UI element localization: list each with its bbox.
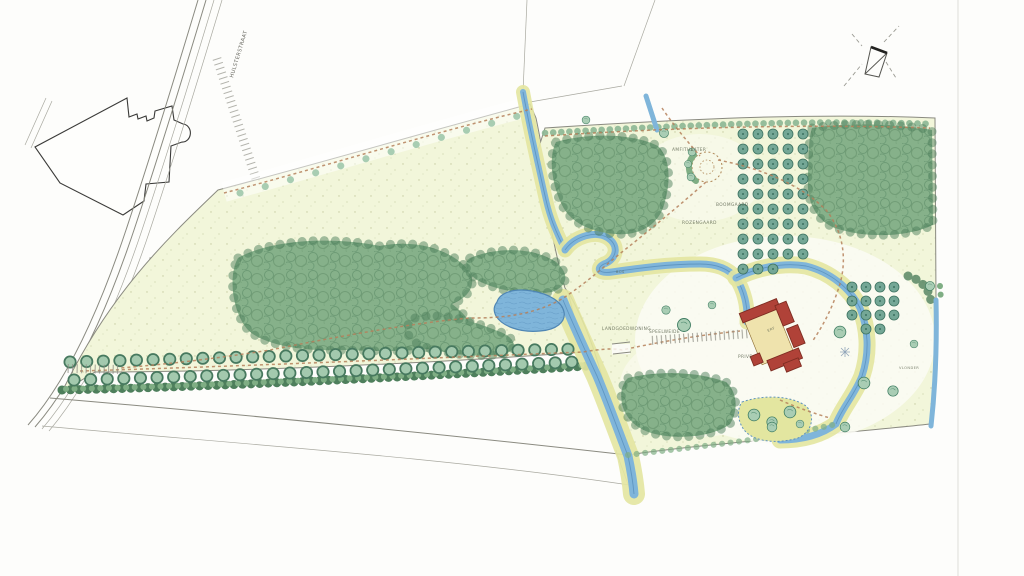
amphitheater-label: AMFITHEATER — [672, 147, 706, 153]
orchard-label: BOOMGAARD — [716, 202, 749, 208]
rose-garden-label: ROZENGAARD — [682, 220, 717, 226]
deck-label: VLONDER — [899, 366, 919, 370]
private-label: PRIVE — [738, 354, 753, 360]
woodland-south — [621, 373, 735, 437]
star-doodle — [840, 347, 850, 357]
estate-house-label: LANDGOEDWONING — [602, 326, 651, 332]
site-plan-page: HULSTERSTRAAT AMFITHEATER BOOMGAARD ROZE… — [0, 0, 1024, 576]
woodland-north — [552, 136, 669, 235]
woodland-northeast — [808, 124, 933, 235]
site-plan-map: HULSTERSTRAAT AMFITHEATER BOOMGAARD ROZE… — [0, 0, 1024, 576]
forest-label: BOS — [616, 270, 625, 274]
wetland — [739, 397, 812, 441]
entrance-lane — [66, 364, 122, 374]
play-meadow-label: SPEELWEIDE — [649, 329, 680, 335]
